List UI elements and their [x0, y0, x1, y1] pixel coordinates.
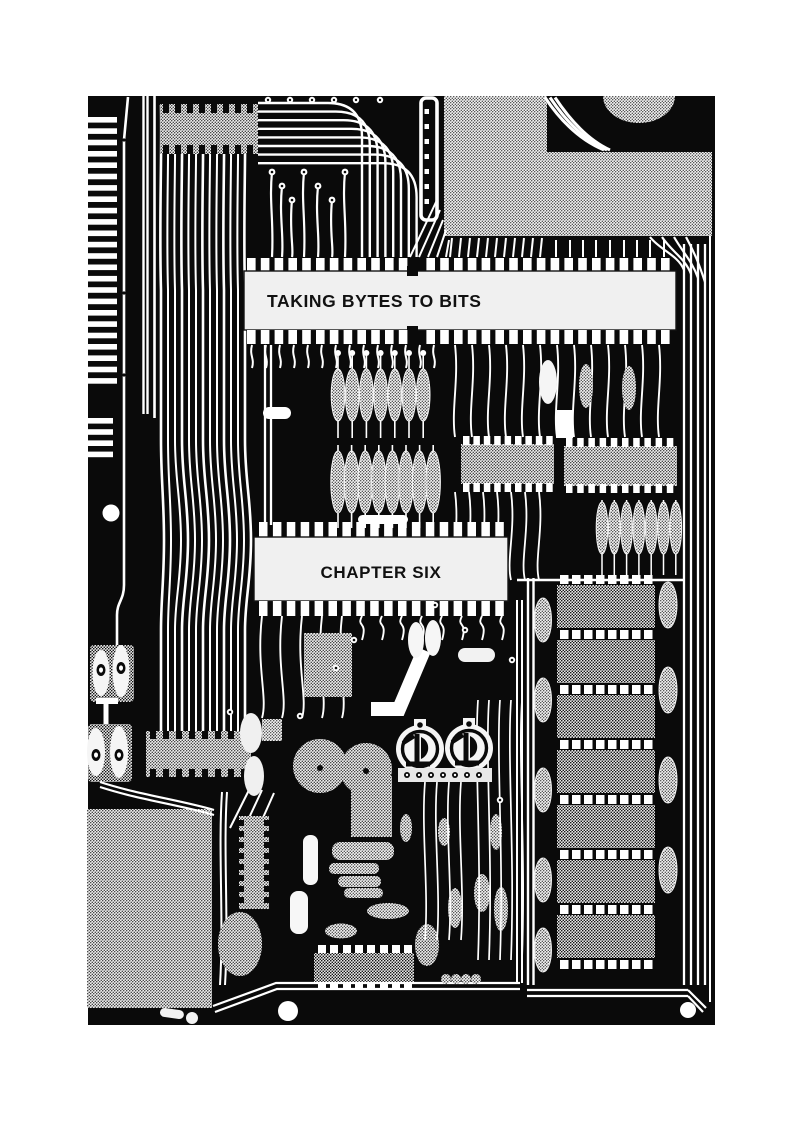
svg-text:TAKING BYTES TO BITS: TAKING BYTES TO BITS	[267, 291, 482, 311]
svg-text:CHAPTER SIX: CHAPTER SIX	[321, 563, 442, 582]
